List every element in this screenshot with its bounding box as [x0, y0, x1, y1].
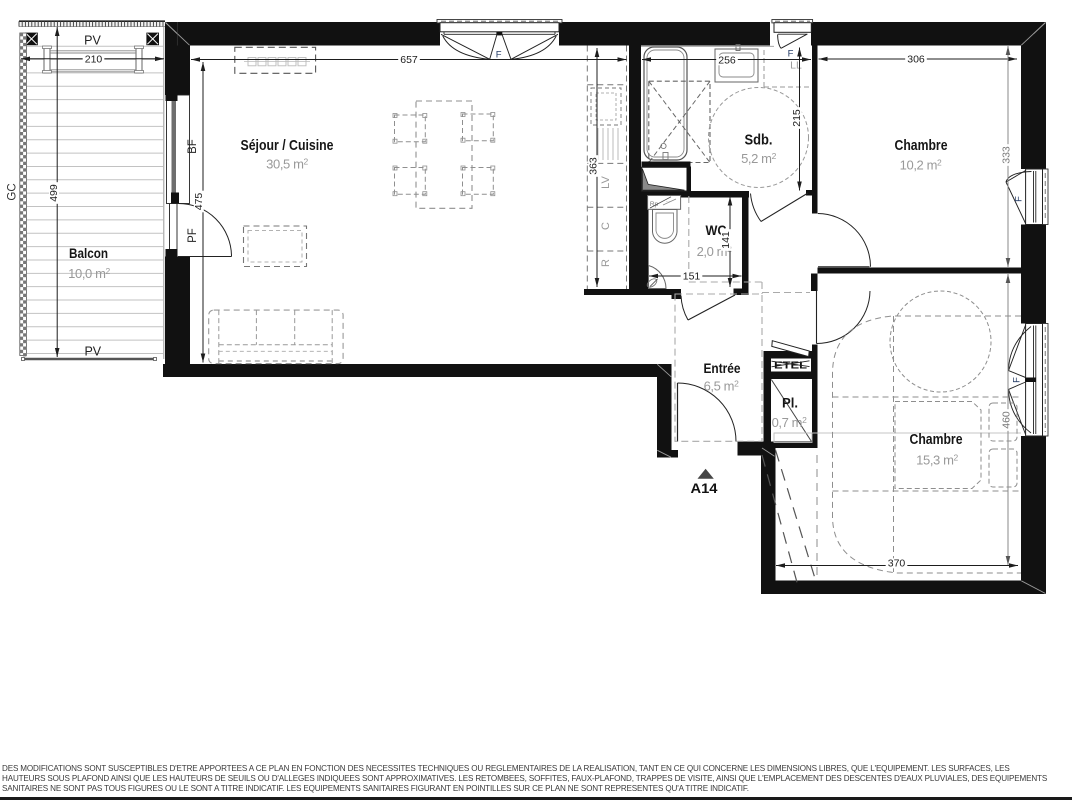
- svg-text:C: C: [600, 222, 612, 230]
- svg-text:Pl.: Pl.: [782, 396, 798, 411]
- svg-text:370: 370: [888, 558, 906, 570]
- svg-text:256: 256: [718, 55, 736, 67]
- svg-text:151: 151: [683, 271, 701, 283]
- svg-text:F: F: [496, 50, 502, 61]
- svg-text:A14: A14: [691, 480, 718, 496]
- svg-text:0,7 m2: 0,7 m2: [772, 415, 808, 430]
- svg-text:657: 657: [400, 54, 418, 66]
- svg-text:475: 475: [193, 193, 205, 211]
- svg-text:PV: PV: [84, 34, 101, 48]
- svg-text:499: 499: [48, 184, 60, 202]
- svg-text:306: 306: [907, 54, 925, 66]
- svg-text:10,0 m2: 10,0 m2: [68, 266, 110, 281]
- svg-text:R: R: [600, 259, 612, 267]
- svg-text:10,2 m2: 10,2 m2: [900, 158, 942, 173]
- svg-text:···: ···: [666, 199, 671, 205]
- svg-text:Balcon: Balcon: [69, 245, 108, 261]
- svg-text:333: 333: [1001, 146, 1013, 164]
- svg-text:BF: BF: [187, 139, 199, 154]
- svg-text:5,2 m2: 5,2 m2: [741, 151, 777, 166]
- svg-text:F: F: [788, 49, 794, 60]
- svg-text:Sdb.: Sdb.: [745, 132, 773, 149]
- svg-text:15,3 m2: 15,3 m2: [916, 453, 958, 468]
- svg-text:F: F: [1014, 196, 1025, 202]
- svg-text:363: 363: [588, 157, 600, 175]
- svg-text:Entrée: Entrée: [704, 360, 741, 376]
- svg-text:141: 141: [720, 231, 732, 249]
- svg-text:6,5 m2: 6,5 m2: [704, 379, 740, 394]
- svg-text:F: F: [1012, 377, 1023, 383]
- svg-text:460: 460: [1001, 411, 1013, 429]
- svg-text:Séjour / Cuisine: Séjour / Cuisine: [241, 137, 334, 154]
- svg-text:PF: PF: [187, 228, 199, 243]
- svg-text:LL: LL: [790, 60, 802, 72]
- svg-text:Chambre: Chambre: [910, 432, 963, 448]
- svg-text:Chambre: Chambre: [895, 138, 948, 154]
- svg-text:GC: GC: [7, 183, 19, 200]
- svg-text:30,5 m2: 30,5 m2: [266, 157, 308, 172]
- svg-text:210: 210: [85, 53, 103, 65]
- svg-text:LV: LV: [600, 176, 612, 189]
- svg-text:PV: PV: [84, 345, 101, 359]
- svg-text:215: 215: [791, 109, 803, 127]
